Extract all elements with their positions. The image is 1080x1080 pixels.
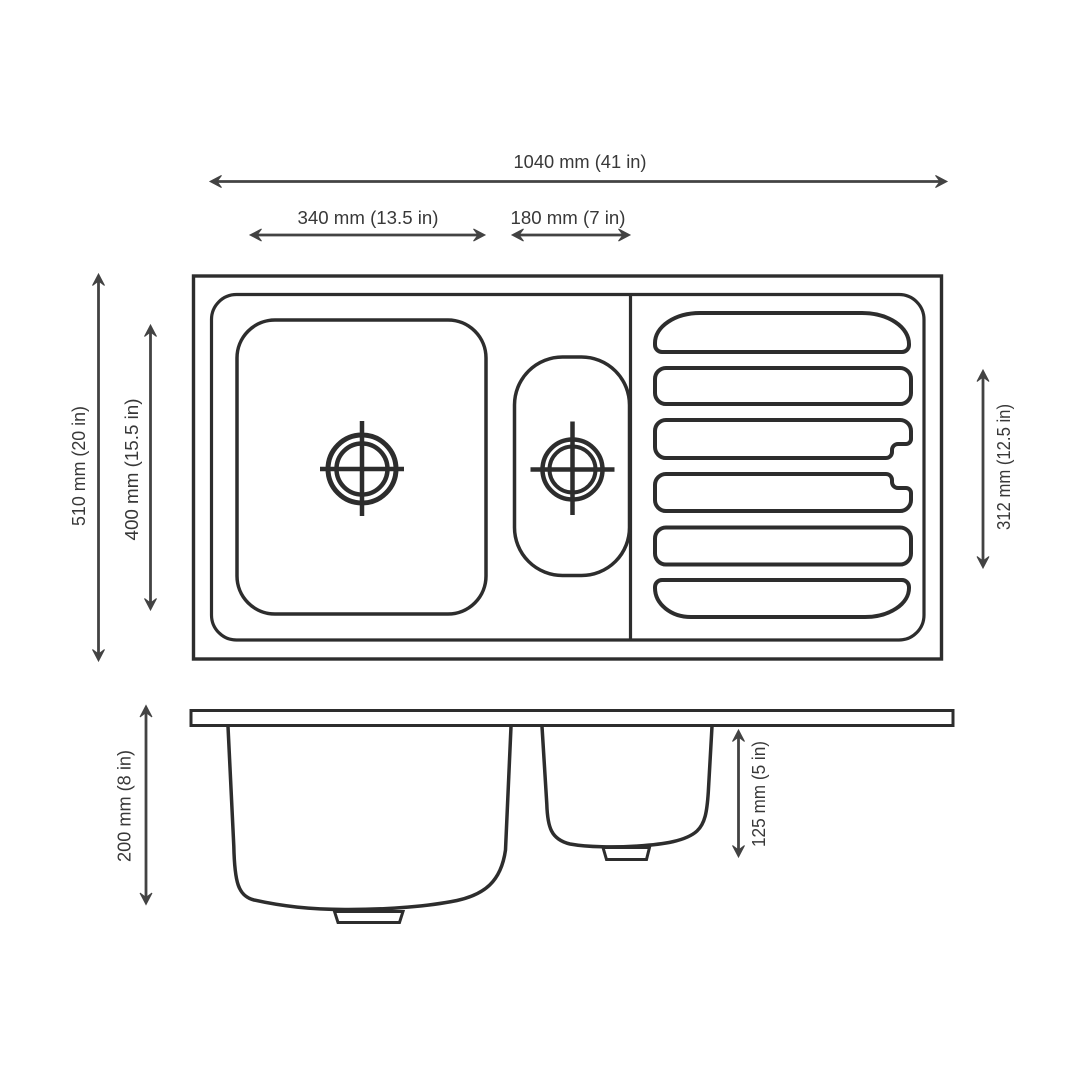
svg-text:1040 mm (41 in): 1040 mm (41 in) bbox=[514, 151, 647, 172]
svg-text:340 mm (13.5 in): 340 mm (13.5 in) bbox=[298, 207, 439, 228]
svg-text:510 mm (20 in): 510 mm (20 in) bbox=[68, 406, 89, 526]
svg-text:312 mm (12.5 in): 312 mm (12.5 in) bbox=[993, 404, 1014, 530]
svg-text:125 mm (5 in): 125 mm (5 in) bbox=[748, 741, 769, 847]
svg-text:200 mm (8 in): 200 mm (8 in) bbox=[114, 750, 135, 862]
svg-text:400 mm (15.5 in): 400 mm (15.5 in) bbox=[121, 399, 142, 541]
svg-text:180 mm (7 in): 180 mm (7 in) bbox=[511, 207, 626, 228]
